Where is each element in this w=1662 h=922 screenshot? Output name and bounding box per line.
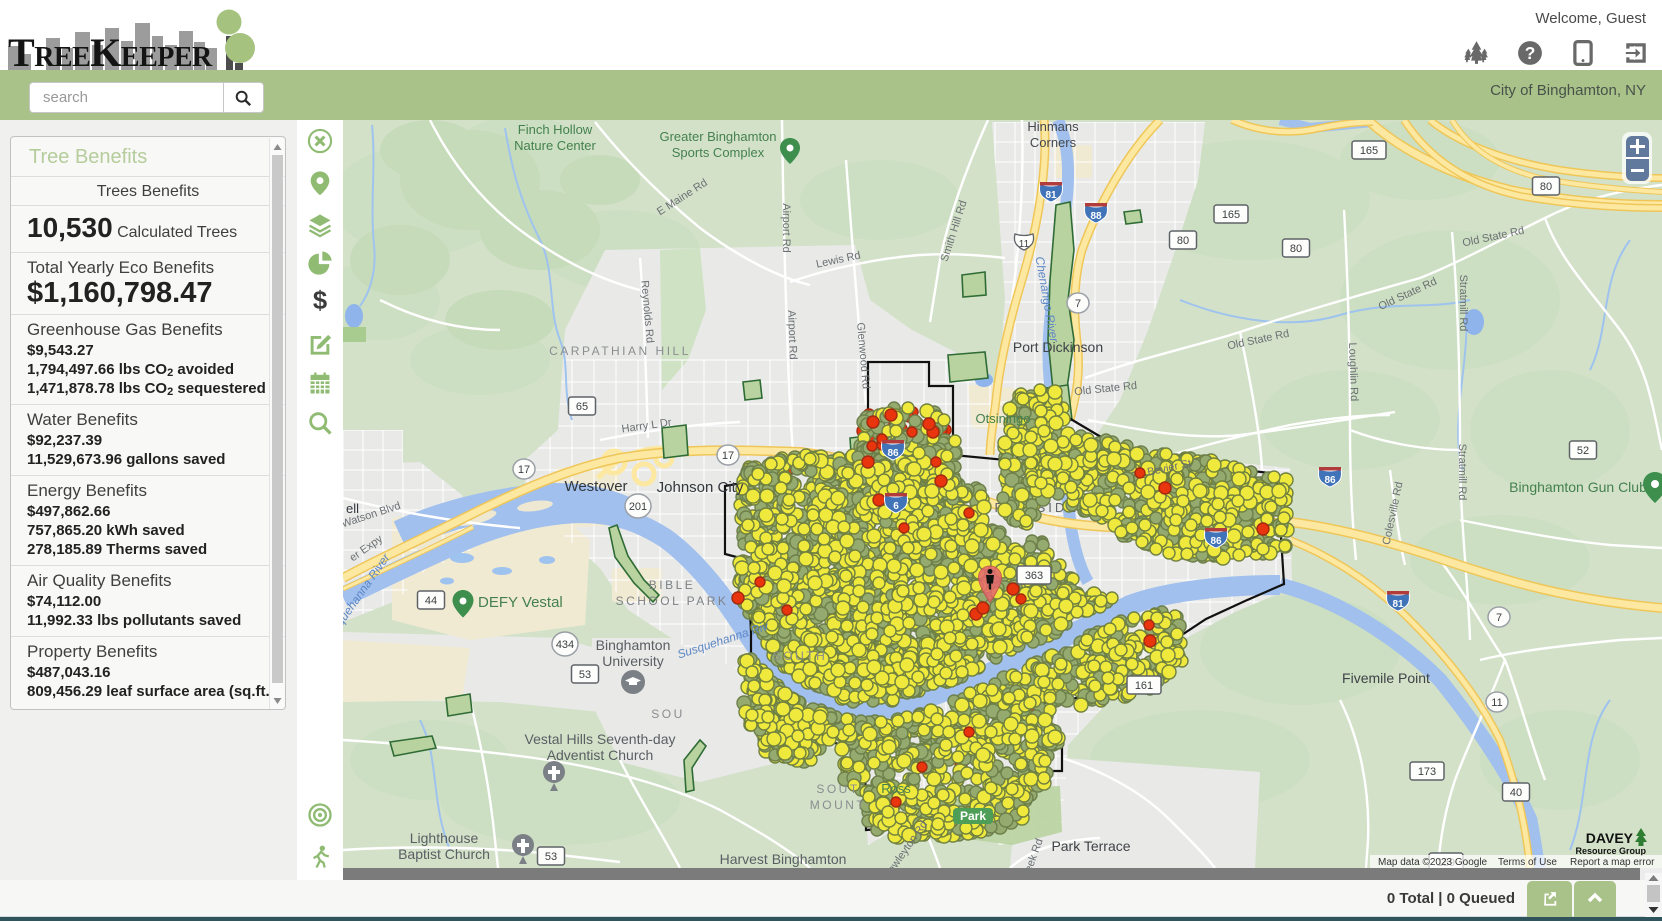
svg-text:?: ? [1525,43,1536,63]
svg-text:$: $ [313,287,327,315]
